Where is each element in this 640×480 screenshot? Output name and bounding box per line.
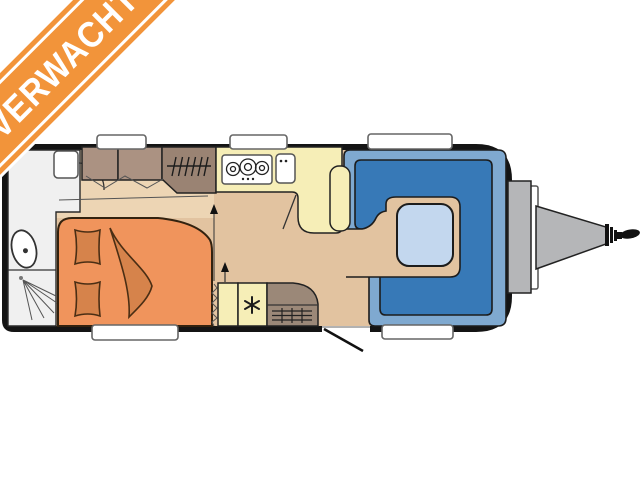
entry-door	[322, 326, 370, 351]
drawbar	[508, 181, 640, 293]
sink	[276, 154, 295, 183]
window	[230, 135, 287, 149]
caravan-floorplan-page: VERWACHT	[0, 0, 640, 480]
washbasin	[54, 151, 78, 178]
side-bolster	[330, 166, 350, 231]
hitch-coupling-icon	[605, 224, 640, 246]
window	[382, 325, 453, 339]
pillow	[75, 282, 100, 316]
overhead-cabinet	[82, 147, 118, 180]
gas-locker-plate	[508, 181, 531, 293]
window	[92, 325, 178, 340]
fridge	[218, 283, 267, 326]
pillow	[75, 230, 100, 264]
stove	[222, 155, 272, 184]
overhead-cabinet	[118, 147, 162, 180]
window	[97, 135, 146, 149]
dinette-table	[397, 204, 453, 266]
window	[368, 134, 452, 149]
drawbar-triangle	[536, 206, 606, 269]
bed	[58, 218, 212, 326]
heater	[267, 283, 318, 326]
wardrobe	[162, 147, 216, 193]
